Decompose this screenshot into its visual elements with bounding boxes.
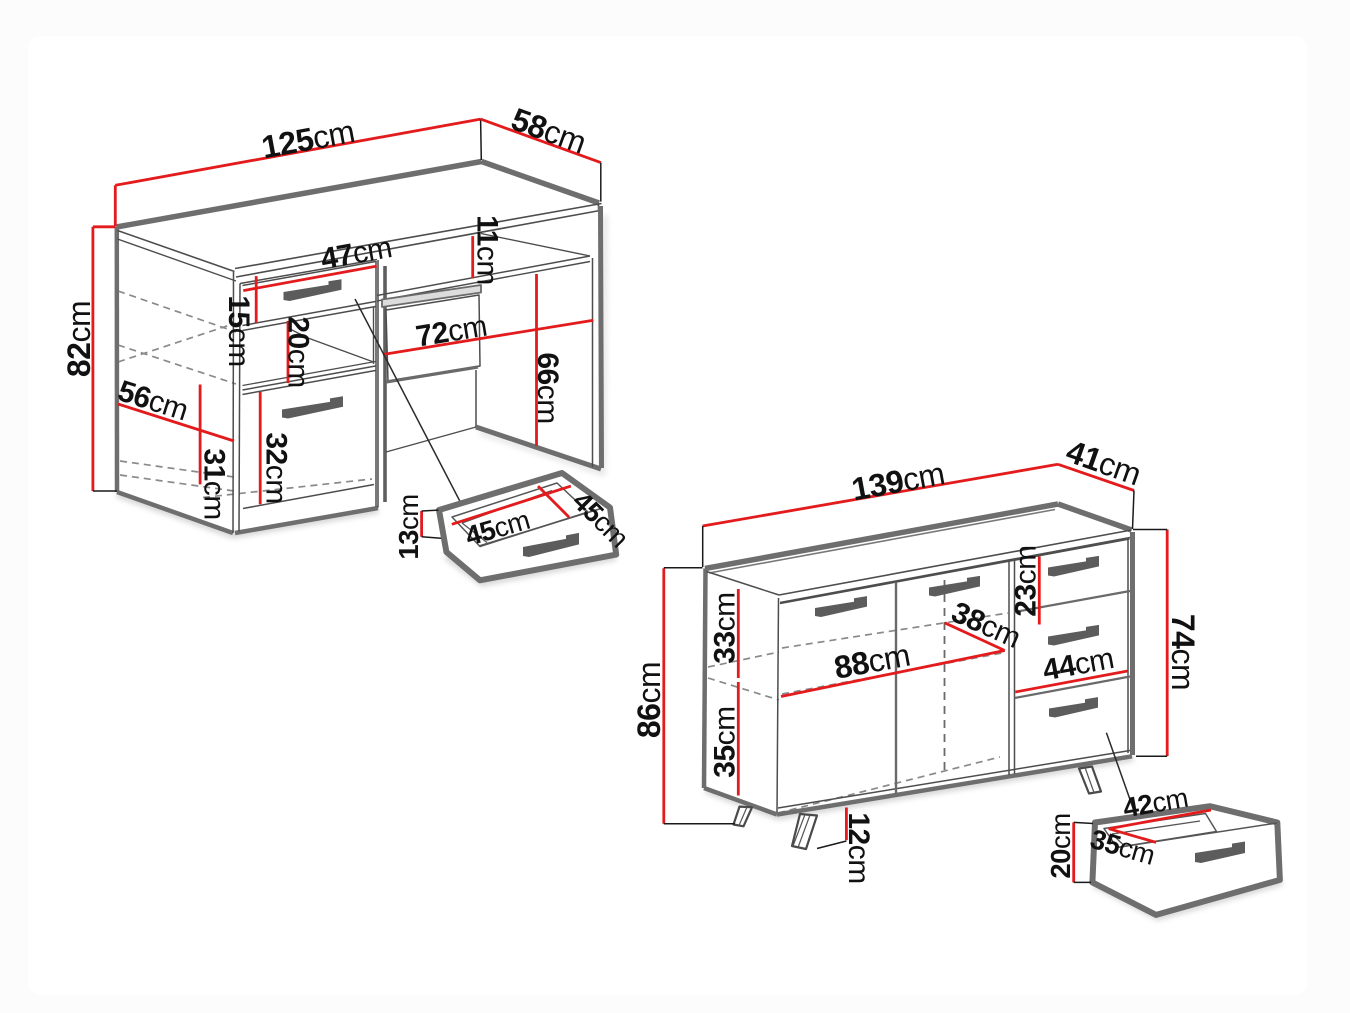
svg-text:86cm: 86cm xyxy=(631,662,667,738)
svg-text:12cm: 12cm xyxy=(842,812,875,883)
svg-text:32cm: 32cm xyxy=(260,432,293,503)
svg-text:11cm: 11cm xyxy=(471,215,504,285)
svg-text:31cm: 31cm xyxy=(198,448,231,519)
svg-text:33cm: 33cm xyxy=(709,592,742,663)
svg-text:74cm: 74cm xyxy=(1165,614,1201,690)
svg-text:20cm: 20cm xyxy=(282,316,315,387)
svg-text:23cm: 23cm xyxy=(1010,545,1043,616)
svg-text:15cm: 15cm xyxy=(222,295,255,366)
svg-text:66cm: 66cm xyxy=(531,352,564,423)
svg-text:13cm: 13cm xyxy=(393,494,424,559)
svg-text:20cm: 20cm xyxy=(1045,813,1076,878)
svg-text:82cm: 82cm xyxy=(61,301,97,377)
svg-text:35cm: 35cm xyxy=(709,706,742,777)
